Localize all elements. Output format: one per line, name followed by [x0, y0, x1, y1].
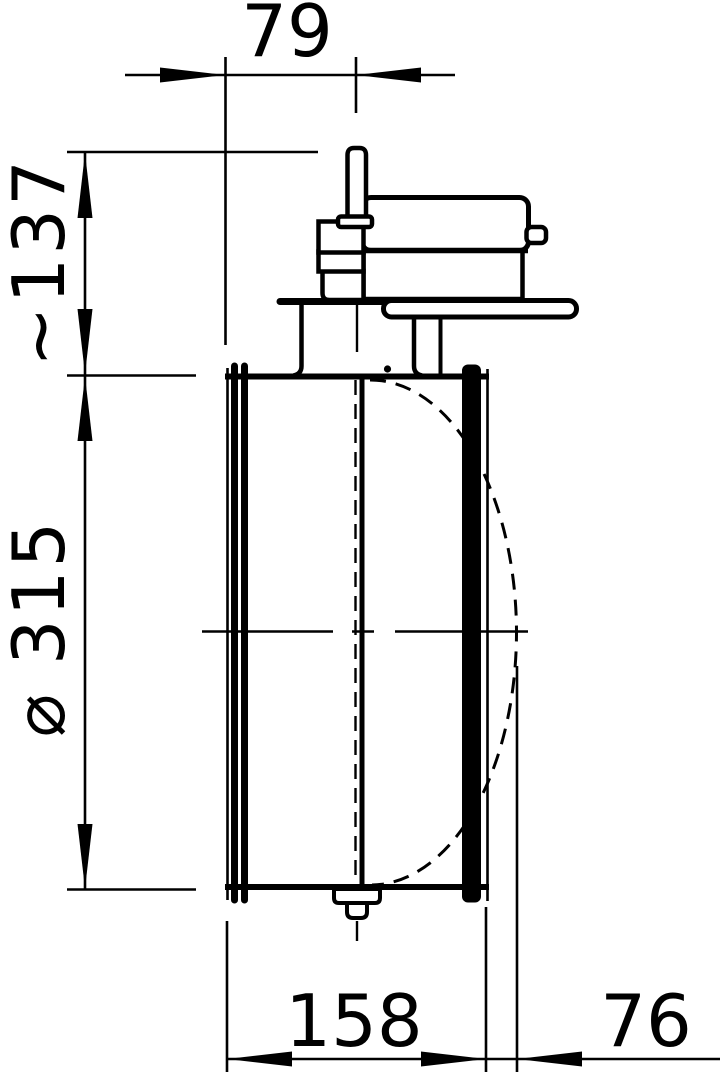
arrowhead — [160, 68, 225, 83]
bottom-bearing-plate — [334, 889, 380, 903]
arrowhead — [78, 377, 93, 442]
rivet-dot — [384, 365, 391, 372]
spindle-collar-washer — [338, 217, 372, 228]
dim-76-label: 76 — [600, 979, 692, 1063]
duct-body — [225, 365, 489, 919]
dimension-76: 76 — [517, 666, 692, 1072]
collar-left-wall — [294, 305, 302, 376]
actuator-side-nub — [527, 227, 547, 243]
damper-drawing: 79 ~137 ⌀ 315 158 76 — [0, 0, 720, 1080]
technical-drawing-page: 79 ~137 ⌀ 315 158 76 — [0, 0, 720, 1080]
right-blade-bar — [462, 365, 481, 903]
actuator-lower-body — [364, 250, 523, 299]
bracket-step-bottom — [323, 271, 364, 300]
arrowhead — [421, 1052, 486, 1067]
dimension-137: ~137 — [0, 152, 318, 376]
bottom-pivot-pin — [347, 903, 367, 918]
arrowhead — [227, 1052, 292, 1067]
dim-315-label: ⌀ 315 — [0, 519, 81, 738]
dimension-315: ⌀ 315 — [0, 376, 196, 890]
arrowhead — [356, 68, 421, 83]
arrowhead — [517, 1052, 582, 1067]
dim-137-label: ~137 — [0, 157, 81, 367]
mounting-plate — [384, 301, 577, 318]
collar-right-wall — [414, 318, 422, 376]
dim-158-label: 158 — [285, 979, 422, 1063]
dim-79-label: 79 — [241, 0, 333, 73]
arrowhead — [78, 824, 93, 889]
spindle-shaft — [348, 148, 367, 223]
actuator-upper-body — [362, 198, 529, 251]
actuator-assembly — [280, 148, 577, 376]
